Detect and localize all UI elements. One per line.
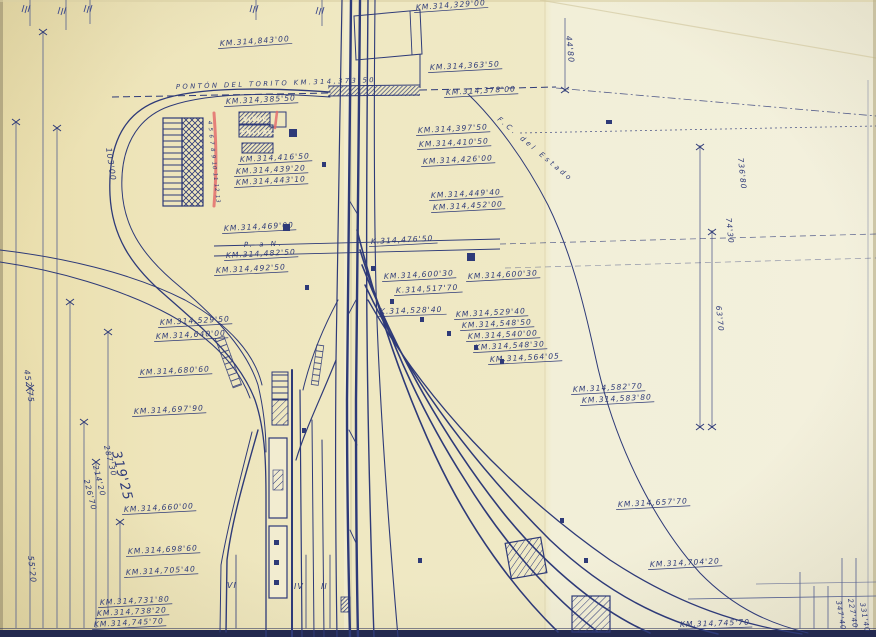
annotation-label: IV [294,582,304,591]
annotation-label: II [321,582,328,591]
building-label: VIVAC [243,116,268,123]
track-plan-drawing: KM.314,329'00KM.314,843'0044'80KM.314,36… [0,0,876,637]
paper-bottom-edge [0,630,876,637]
blueprint-scan: KM.314,329'00KM.314,843'0044'80KM.314,36… [0,0,876,637]
paper-left-edge [0,0,3,637]
paper-background [0,0,876,637]
platform-compartments [163,118,182,206]
annotation-label: VI [227,581,237,590]
signal-box-marker [289,129,297,137]
shed-lower-right [505,537,547,579]
mid-building-bottom [272,400,288,425]
third-hatched-box [242,143,273,153]
mid-building-top [272,372,288,400]
shed-bottom [572,596,610,632]
station-building [182,118,203,206]
building-label: ENCLAV. [241,129,276,136]
